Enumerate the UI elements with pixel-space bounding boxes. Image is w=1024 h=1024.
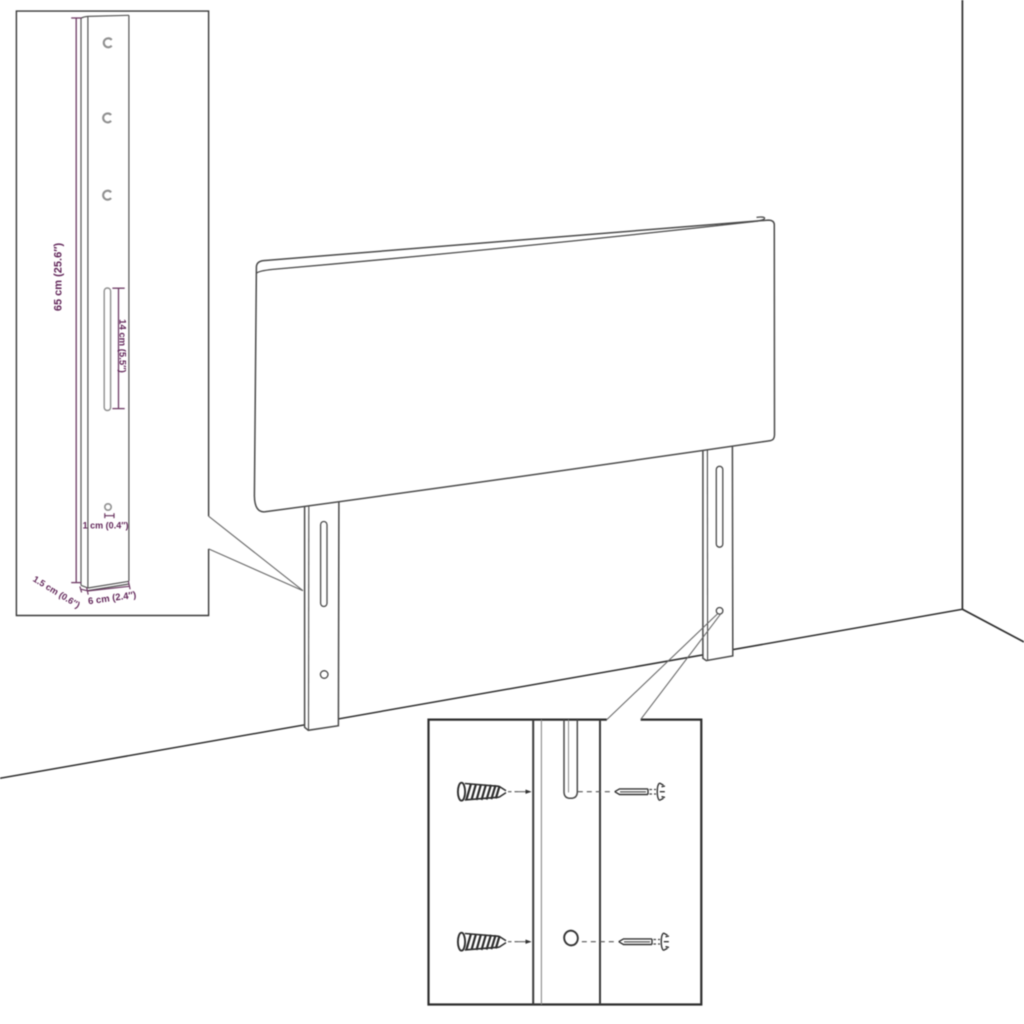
svg-text:14 cm (5.5″): 14 cm (5.5″) xyxy=(116,319,127,373)
svg-text:1 cm (0.4″): 1 cm (0.4″) xyxy=(83,521,129,531)
svg-text:65 cm (25.6″): 65 cm (25.6″) xyxy=(53,243,65,312)
